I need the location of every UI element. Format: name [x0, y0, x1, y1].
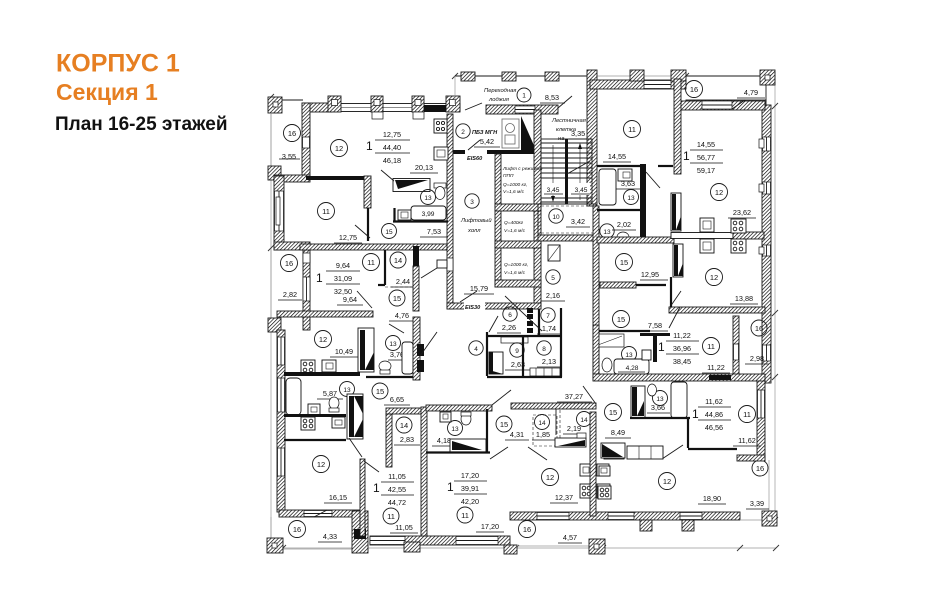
svg-text:2,19: 2,19 — [567, 424, 581, 433]
svg-text:10: 10 — [552, 214, 560, 221]
svg-text:14: 14 — [538, 420, 546, 427]
svg-text:Лифт с режимом: Лифт с режимом — [502, 166, 543, 172]
svg-text:15: 15 — [617, 315, 625, 324]
svg-text:12: 12 — [317, 460, 325, 469]
svg-text:11,62: 11,62 — [738, 436, 756, 445]
svg-text:15: 15 — [385, 229, 393, 236]
svg-text:13: 13 — [656, 396, 664, 403]
svg-text:3,55: 3,55 — [282, 152, 296, 161]
svg-text:15: 15 — [393, 294, 401, 303]
svg-text:3,45: 3,45 — [547, 187, 560, 194]
svg-text:36,96: 36,96 — [673, 344, 691, 353]
svg-text:5: 5 — [551, 275, 555, 282]
svg-text:12: 12 — [663, 477, 671, 486]
svg-text:44,72: 44,72 — [388, 498, 406, 507]
svg-text:3,66: 3,66 — [651, 403, 665, 412]
svg-text:ПБЗ МГН: ПБЗ МГН — [472, 130, 498, 136]
svg-text:2,44: 2,44 — [396, 277, 410, 286]
svg-text:14: 14 — [400, 421, 408, 430]
svg-text:46,56: 46,56 — [705, 423, 723, 432]
svg-text:1: 1 — [658, 340, 665, 354]
svg-text:16: 16 — [690, 85, 698, 94]
svg-text:56,77: 56,77 — [697, 153, 715, 162]
svg-text:12,37: 12,37 — [555, 493, 573, 502]
svg-text:15: 15 — [500, 420, 508, 429]
svg-text:42,20: 42,20 — [461, 497, 479, 506]
svg-text:Q=1000 кг,: Q=1000 кг, — [503, 182, 528, 188]
svg-text:16: 16 — [285, 259, 293, 268]
svg-text:16: 16 — [756, 464, 764, 473]
svg-text:1: 1 — [373, 481, 380, 495]
svg-text:1: 1 — [316, 271, 323, 285]
svg-text:13: 13 — [627, 195, 635, 202]
svg-text:EIS30: EIS30 — [465, 305, 481, 311]
svg-text:1: 1 — [366, 139, 373, 153]
svg-text:39,91: 39,91 — [461, 484, 479, 493]
svg-text:12: 12 — [335, 144, 343, 153]
svg-text:16: 16 — [288, 129, 296, 138]
svg-text:13: 13 — [625, 352, 633, 359]
svg-text:Лестничная: Лестничная — [551, 118, 586, 124]
svg-text:1,74: 1,74 — [542, 324, 556, 333]
svg-text:15: 15 — [376, 387, 384, 396]
svg-text:18,90: 18,90 — [703, 494, 721, 503]
svg-text:23,62: 23,62 — [733, 208, 751, 217]
svg-text:EIS60: EIS60 — [467, 156, 483, 162]
svg-text:1: 1 — [447, 480, 454, 494]
svg-text:13,88: 13,88 — [735, 294, 753, 303]
svg-text:4,31: 4,31 — [510, 430, 524, 439]
svg-text:13: 13 — [603, 229, 611, 236]
svg-text:7,58: 7,58 — [648, 321, 662, 330]
svg-text:3,63: 3,63 — [621, 179, 635, 188]
svg-text:17,20: 17,20 — [461, 471, 479, 480]
svg-text:15: 15 — [609, 408, 617, 417]
svg-text:Секция 1: Секция 1 — [56, 79, 158, 105]
svg-text:КОРПУС 1: КОРПУС 1 — [56, 50, 180, 78]
svg-text:4,28: 4,28 — [626, 365, 639, 372]
svg-text:12: 12 — [546, 473, 554, 482]
svg-text:11,05: 11,05 — [395, 523, 413, 532]
svg-text:2,98: 2,98 — [750, 354, 764, 363]
svg-text:11: 11 — [322, 207, 330, 216]
svg-text:4,57: 4,57 — [563, 533, 577, 542]
svg-text:12,95: 12,95 — [641, 270, 659, 279]
svg-text:11,62: 11,62 — [705, 397, 723, 406]
svg-text:16,15: 16,15 — [329, 493, 347, 502]
svg-text:11: 11 — [628, 125, 636, 134]
svg-text:2,26: 2,26 — [502, 323, 516, 332]
svg-text:14,55: 14,55 — [608, 152, 626, 161]
svg-text:17,20: 17,20 — [481, 522, 499, 531]
svg-text:Q=1000 кг,: Q=1000 кг, — [504, 262, 529, 268]
svg-text:План 16-25 этажей: План 16-25 этажей — [55, 114, 228, 135]
svg-text:11: 11 — [743, 410, 751, 419]
svg-text:44,86: 44,86 — [705, 410, 723, 419]
svg-text:2,82: 2,82 — [283, 290, 297, 299]
svg-text:16: 16 — [293, 525, 301, 534]
svg-text:11: 11 — [707, 342, 715, 351]
svg-text:4,79: 4,79 — [744, 88, 758, 97]
svg-text:ППП: ППП — [503, 173, 514, 179]
svg-text:11,22: 11,22 — [673, 331, 691, 340]
svg-text:11: 11 — [461, 511, 469, 520]
svg-text:7,53: 7,53 — [427, 227, 441, 236]
svg-text:2: 2 — [461, 129, 465, 136]
svg-text:31,09: 31,09 — [334, 274, 352, 283]
svg-text:15,79: 15,79 — [470, 284, 488, 293]
svg-text:13: 13 — [424, 195, 432, 202]
svg-text:8: 8 — [542, 346, 546, 353]
svg-text:4,33: 4,33 — [323, 532, 337, 541]
svg-text:20,13: 20,13 — [415, 163, 433, 172]
svg-text:12: 12 — [715, 188, 723, 197]
svg-text:3,99: 3,99 — [422, 211, 435, 218]
svg-text:3,45: 3,45 — [575, 187, 588, 194]
svg-text:9,64: 9,64 — [336, 261, 350, 270]
svg-text:16: 16 — [755, 324, 763, 333]
svg-text:13: 13 — [389, 341, 397, 348]
svg-text:11: 11 — [367, 258, 375, 267]
svg-text:3,42: 3,42 — [571, 217, 585, 226]
svg-text:Q=400кг: Q=400кг — [504, 220, 524, 226]
svg-text:14: 14 — [394, 256, 402, 265]
svg-text:4,76: 4,76 — [395, 311, 409, 320]
svg-text:6,65: 6,65 — [390, 395, 404, 404]
svg-text:5,42: 5,42 — [480, 137, 494, 146]
svg-text:11,05: 11,05 — [388, 472, 406, 481]
svg-text:8,53: 8,53 — [545, 93, 559, 102]
svg-text:11,22: 11,22 — [707, 363, 725, 372]
svg-text:42,55: 42,55 — [388, 485, 406, 494]
svg-text:15: 15 — [620, 258, 628, 267]
svg-text:лоджия: лоджия — [488, 97, 509, 103]
svg-text:9,64: 9,64 — [343, 295, 357, 304]
svg-text:4,18: 4,18 — [437, 436, 451, 445]
svg-text:12: 12 — [319, 335, 327, 344]
svg-text:2,16: 2,16 — [546, 291, 560, 300]
svg-text:12: 12 — [710, 273, 718, 282]
svg-text:1: 1 — [522, 93, 526, 100]
svg-text:8,49: 8,49 — [611, 428, 625, 437]
svg-text:11: 11 — [387, 512, 395, 521]
svg-text:44,40: 44,40 — [383, 143, 401, 152]
svg-text:16: 16 — [523, 525, 531, 534]
svg-text:7: 7 — [546, 313, 550, 320]
svg-text:38,45: 38,45 — [673, 357, 691, 366]
svg-text:3: 3 — [470, 199, 474, 206]
svg-text:V=1,6 м/с: V=1,6 м/с — [504, 270, 526, 276]
svg-text:9: 9 — [515, 348, 519, 355]
svg-text:14,55: 14,55 — [697, 140, 715, 149]
svg-text:12,75: 12,75 — [383, 130, 401, 139]
svg-text:14: 14 — [580, 417, 588, 424]
svg-text:4: 4 — [474, 346, 478, 353]
svg-text:Лифтовый: Лифтовый — [460, 217, 492, 224]
svg-text:13: 13 — [451, 426, 459, 433]
svg-text:1: 1 — [683, 149, 690, 163]
svg-text:37,27: 37,27 — [565, 392, 583, 401]
svg-text:46,18: 46,18 — [383, 156, 401, 165]
svg-text:1: 1 — [692, 407, 699, 421]
svg-text:59,17: 59,17 — [697, 166, 715, 175]
svg-text:13: 13 — [343, 387, 351, 394]
svg-text:3,39: 3,39 — [750, 499, 764, 508]
svg-text:2,83: 2,83 — [400, 435, 414, 444]
svg-text:1,85: 1,85 — [536, 430, 550, 439]
svg-text:12,75: 12,75 — [339, 233, 357, 242]
svg-text:холл: холл — [467, 228, 481, 234]
svg-text:V=1,6 м/с: V=1,6 м/с — [504, 228, 526, 234]
svg-text:V=1,6 м/с: V=1,6 м/с — [503, 189, 525, 195]
svg-text:2,02: 2,02 — [617, 220, 631, 229]
svg-text:Переходная: Переходная — [484, 88, 516, 94]
svg-text:10,49: 10,49 — [335, 347, 353, 356]
svg-text:5,87: 5,87 — [323, 389, 337, 398]
svg-text:2,13: 2,13 — [542, 357, 556, 366]
svg-text:3,35: 3,35 — [571, 129, 585, 138]
svg-text:6: 6 — [508, 312, 512, 319]
